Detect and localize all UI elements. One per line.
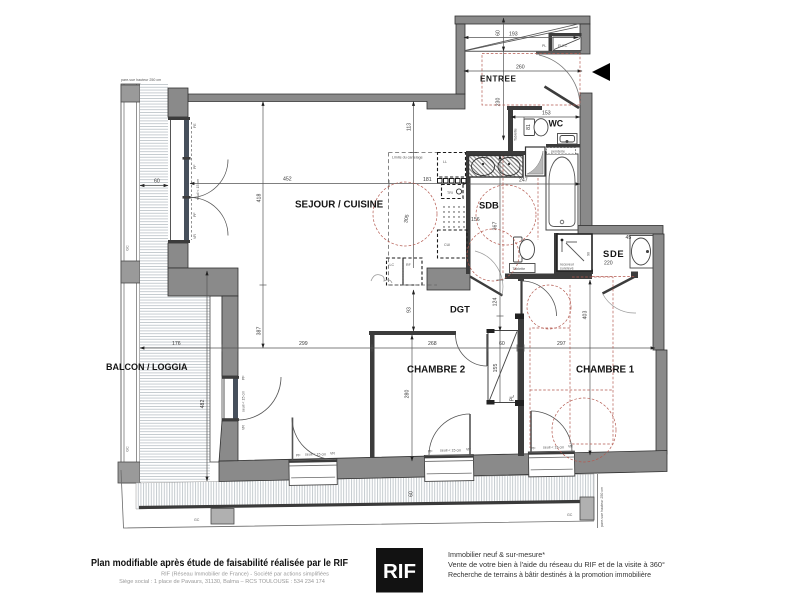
svg-text:PF: PF [531, 447, 536, 451]
svg-text:BALCON / LOGGIA: BALCON / LOGGIA [106, 362, 188, 372]
svg-text:SDB: SDB [479, 200, 499, 211]
svg-text:seuil < 15 cm: seuil < 15 cm [543, 446, 564, 450]
svg-text:305: 305 [403, 214, 410, 224]
svg-text:93: 93 [407, 307, 413, 313]
svg-text:387: 387 [257, 327, 263, 336]
svg-text:VR: VR [242, 425, 246, 430]
svg-text:193: 193 [509, 32, 518, 38]
svg-text:268: 268 [428, 341, 437, 347]
svg-text:surélevé: surélevé [560, 266, 574, 270]
svg-text:RIF: RIF [383, 560, 416, 583]
svg-text:280: 280 [405, 390, 411, 399]
svg-text:DGT: DGT [450, 304, 470, 315]
svg-text:ENTREE: ENTREE [480, 75, 517, 84]
svg-text:GC: GC [126, 446, 130, 452]
svg-text:60: 60 [154, 179, 160, 185]
svg-text:PF: PF [242, 375, 246, 380]
svg-text:Plan modifiable après étude de: Plan modifiable après étude de faisabili… [91, 558, 348, 569]
svg-text:60: 60 [409, 491, 415, 497]
svg-text:seuil < 15 cm: seuil < 15 cm [440, 449, 461, 453]
svg-text:Tablette: Tablette [513, 267, 526, 271]
svg-text:VR: VR [330, 452, 335, 456]
svg-text:299: 299 [299, 341, 308, 347]
svg-text:RIF (Réseau Immobilier de Fran: RIF (Réseau Immobilier de France) - Soci… [161, 572, 329, 578]
svg-text:81: 81 [526, 124, 532, 130]
svg-text:Tablette: Tablette [514, 128, 518, 141]
svg-text:pare-vue hauteur 250 cm: pare-vue hauteur 250 cm [121, 78, 161, 82]
svg-text:seuil < 15 cm: seuil < 15 cm [196, 179, 200, 200]
svg-text:220: 220 [604, 261, 613, 267]
svg-text:PL: PL [542, 44, 546, 48]
svg-text:GC: GC [194, 518, 200, 522]
svg-text:PF: PF [296, 454, 301, 458]
svg-text:45: 45 [626, 235, 632, 241]
svg-text:VR: VR [568, 445, 573, 449]
svg-text:PL: PL [510, 395, 516, 401]
svg-text:ELEC: ELEC [558, 44, 568, 48]
svg-text:FE: FE [193, 123, 197, 128]
svg-text:452: 452 [283, 177, 292, 183]
svg-text:PF: PF [193, 164, 197, 169]
svg-text:VR: VR [193, 234, 197, 239]
svg-text:176: 176 [172, 341, 181, 347]
svg-text:SEJOUR / CUISINE: SEJOUR / CUISINE [295, 200, 384, 211]
svg-text:seuil < 15 cm: seuil < 15 cm [242, 391, 246, 412]
svg-text:60: 60 [499, 341, 505, 347]
svg-text:Limite du carrelage: Limite du carrelage [392, 156, 423, 160]
svg-text:297: 297 [557, 341, 566, 347]
svg-text:CHAMBRE 1: CHAMBRE 1 [576, 365, 635, 376]
svg-text:RF: RF [406, 263, 412, 267]
svg-text:482: 482 [200, 400, 206, 409]
svg-text:124: 124 [493, 298, 499, 307]
svg-text:Siège social : 1 place de Pava: Siège social : 1 place de Pavaurs, 31130… [119, 579, 325, 585]
svg-text:GC: GC [567, 513, 573, 517]
svg-text:113: 113 [407, 123, 413, 131]
svg-text:403: 403 [583, 311, 589, 320]
svg-text:CUI: CUI [444, 243, 450, 247]
svg-text:Immobilier neuf & sur-mesure*: Immobilier neuf & sur-mesure* [448, 550, 545, 559]
svg-text:247: 247 [519, 178, 528, 184]
svg-text:seuil < 15 cm: seuil < 15 cm [305, 453, 326, 457]
svg-text:153: 153 [542, 111, 551, 117]
svg-text:penderie: penderie [551, 150, 565, 154]
svg-text:WC: WC [549, 119, 564, 129]
svg-text:418: 418 [257, 194, 263, 203]
svg-text:CHAMBRE 2: CHAMBRE 2 [407, 365, 466, 376]
svg-text:260: 260 [516, 65, 525, 71]
svg-text:Recherche de terrains à bâtir: Recherche de terrains à bâtir destinés à… [448, 570, 651, 579]
svg-text:VR: VR [466, 448, 471, 452]
svg-text:156: 156 [471, 217, 480, 223]
svg-text:155: 155 [493, 364, 499, 373]
svg-text:181: 181 [423, 177, 432, 183]
svg-text:LC: LC [390, 263, 395, 267]
svg-text:Vente de votre bien à l'aide d: Vente de votre bien à l'aide du réseau d… [448, 560, 665, 569]
svg-text:60: 60 [496, 30, 502, 36]
svg-text:PF: PF [193, 212, 197, 217]
svg-text:LL: LL [443, 160, 447, 164]
svg-text:SDE: SDE [603, 248, 624, 259]
svg-text:TRI: TRI [447, 191, 453, 195]
svg-text:PF: PF [428, 450, 433, 454]
svg-text:90: 90 [587, 252, 591, 256]
svg-text:GC: GC [126, 245, 130, 251]
svg-text:pare-vue hauteur 250 cm: pare-vue hauteur 250 cm [600, 487, 604, 527]
